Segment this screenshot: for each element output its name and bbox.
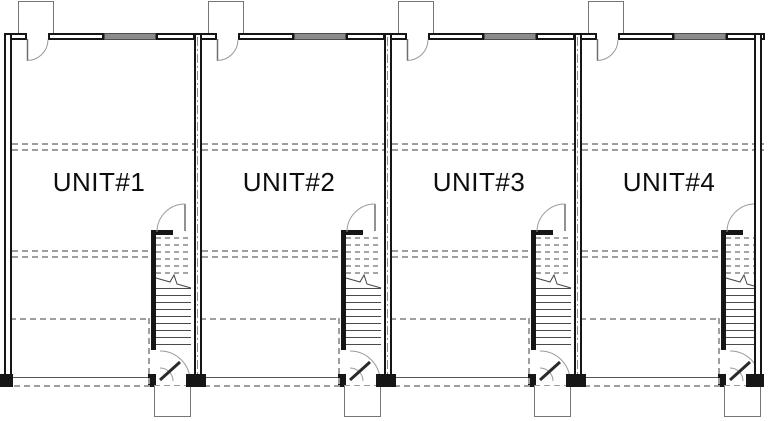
party-wall (384, 33, 392, 383)
floor-plan: UNIT#1 (0, 0, 770, 421)
unit-label: UNIT#4 (574, 167, 764, 198)
stair-upper-treads (346, 237, 381, 279)
rear-door-swing-small (540, 368, 553, 381)
rear-entry-porch (154, 386, 191, 417)
door-swing-layer (4, 0, 194, 421)
unit-1: UNIT#1 (4, 0, 194, 421)
rear-door-leaf (540, 362, 560, 380)
garage-outline-top (580, 318, 720, 320)
stair-head-wall (151, 230, 173, 235)
front-wall-segment (48, 33, 104, 40)
front-wall-segment (238, 33, 294, 40)
stair-head-wall (341, 230, 363, 235)
garage-outline-right (718, 318, 720, 386)
rear-door-swing-small (160, 368, 173, 381)
party-wall-centerline (387, 37, 388, 379)
rear-door-swing-small (730, 368, 743, 381)
rear-door-leaf (160, 362, 180, 380)
unit-label: UNIT#3 (384, 167, 574, 198)
garage-door-line (392, 377, 528, 378)
overhang-dashed-line (392, 256, 531, 258)
front-entry-porch (208, 1, 244, 33)
front-window-segment (104, 33, 156, 40)
garage-outline-top (390, 318, 530, 320)
unit-2: UNIT#2 (194, 0, 384, 421)
garage-outline-right (338, 318, 340, 386)
wall-foot (0, 374, 13, 387)
front-entry-porch (588, 1, 624, 33)
door-swing-layer (194, 0, 384, 421)
rear-door-leaf (350, 362, 370, 380)
door-swing-layer (574, 0, 764, 421)
overhang-dashed-line (202, 250, 341, 252)
front-wall-segment (346, 33, 385, 40)
overhang-dashed-line (392, 143, 574, 145)
wall-foot (746, 374, 764, 387)
unit-label: UNIT#1 (4, 167, 194, 198)
overhang-dashed-line (582, 256, 721, 258)
stair-door-swing (537, 204, 565, 232)
overhang-dashed-line (12, 250, 151, 252)
garage-outline-top (10, 318, 150, 320)
front-door-swing (217, 40, 238, 61)
party-wall (194, 33, 202, 383)
stair-upper-treads (536, 237, 571, 279)
wall-foot (186, 374, 206, 387)
front-wall-segment (428, 33, 484, 40)
front-door-swing (27, 40, 48, 61)
garage-outline-right (148, 318, 150, 386)
front-window-segment (294, 33, 346, 40)
stair-door-swing (347, 204, 375, 232)
unit-3: UNIT#3 (384, 0, 574, 421)
overhang-dashed-line (392, 149, 574, 151)
garage-door-line (582, 377, 718, 378)
party-wall (574, 33, 582, 383)
front-door-swing (597, 40, 618, 61)
overhang-dashed-line (202, 149, 384, 151)
exterior-wall-right (754, 33, 762, 383)
overhang-dashed-line (202, 256, 341, 258)
stair-head-wall (531, 230, 553, 235)
overhang-dashed-line (582, 143, 764, 145)
garage-outline-top (200, 318, 340, 320)
stair-head-wall (721, 230, 743, 235)
stair-door-swing (157, 204, 185, 232)
overhang-dashed-line (12, 143, 194, 145)
rear-door-swing-small (350, 368, 363, 381)
stair-door-swing (727, 204, 755, 232)
front-window-segment (484, 33, 536, 40)
exterior-wall-left (4, 33, 12, 383)
unit-label: UNIT#2 (194, 167, 384, 198)
stair-lower-treads (156, 288, 191, 346)
front-window-segment (674, 33, 726, 40)
stair-upper-treads (156, 237, 191, 279)
overhang-dashed-line (12, 149, 194, 151)
party-wall-centerline (577, 37, 578, 379)
front-wall-segment (536, 33, 575, 40)
overhang-dashed-line (12, 256, 151, 258)
stair-lower-treads (346, 288, 381, 346)
overhang-dashed-line (582, 250, 721, 252)
garage-door-line (202, 377, 338, 378)
rear-entry-porch (724, 386, 761, 417)
overhang-dashed-line (582, 149, 764, 151)
party-wall-centerline (197, 37, 198, 379)
garage-outline-right (528, 318, 530, 386)
front-wall-segment (618, 33, 674, 40)
front-entry-porch (18, 1, 54, 33)
rear-entry-porch (344, 386, 381, 417)
wall-foot (566, 374, 586, 387)
overhang-dashed-line (392, 250, 531, 252)
garage-door-line (12, 377, 148, 378)
door-swing-layer (384, 0, 574, 421)
overhang-dashed-line (202, 143, 384, 145)
stair-lower-treads (536, 288, 571, 346)
front-entry-porch (398, 1, 434, 33)
front-wall-segment (156, 33, 195, 40)
front-door-swing (407, 40, 428, 61)
unit-4: UNIT#4 (574, 0, 764, 421)
wall-foot (376, 374, 396, 387)
rear-entry-porch (534, 386, 571, 417)
